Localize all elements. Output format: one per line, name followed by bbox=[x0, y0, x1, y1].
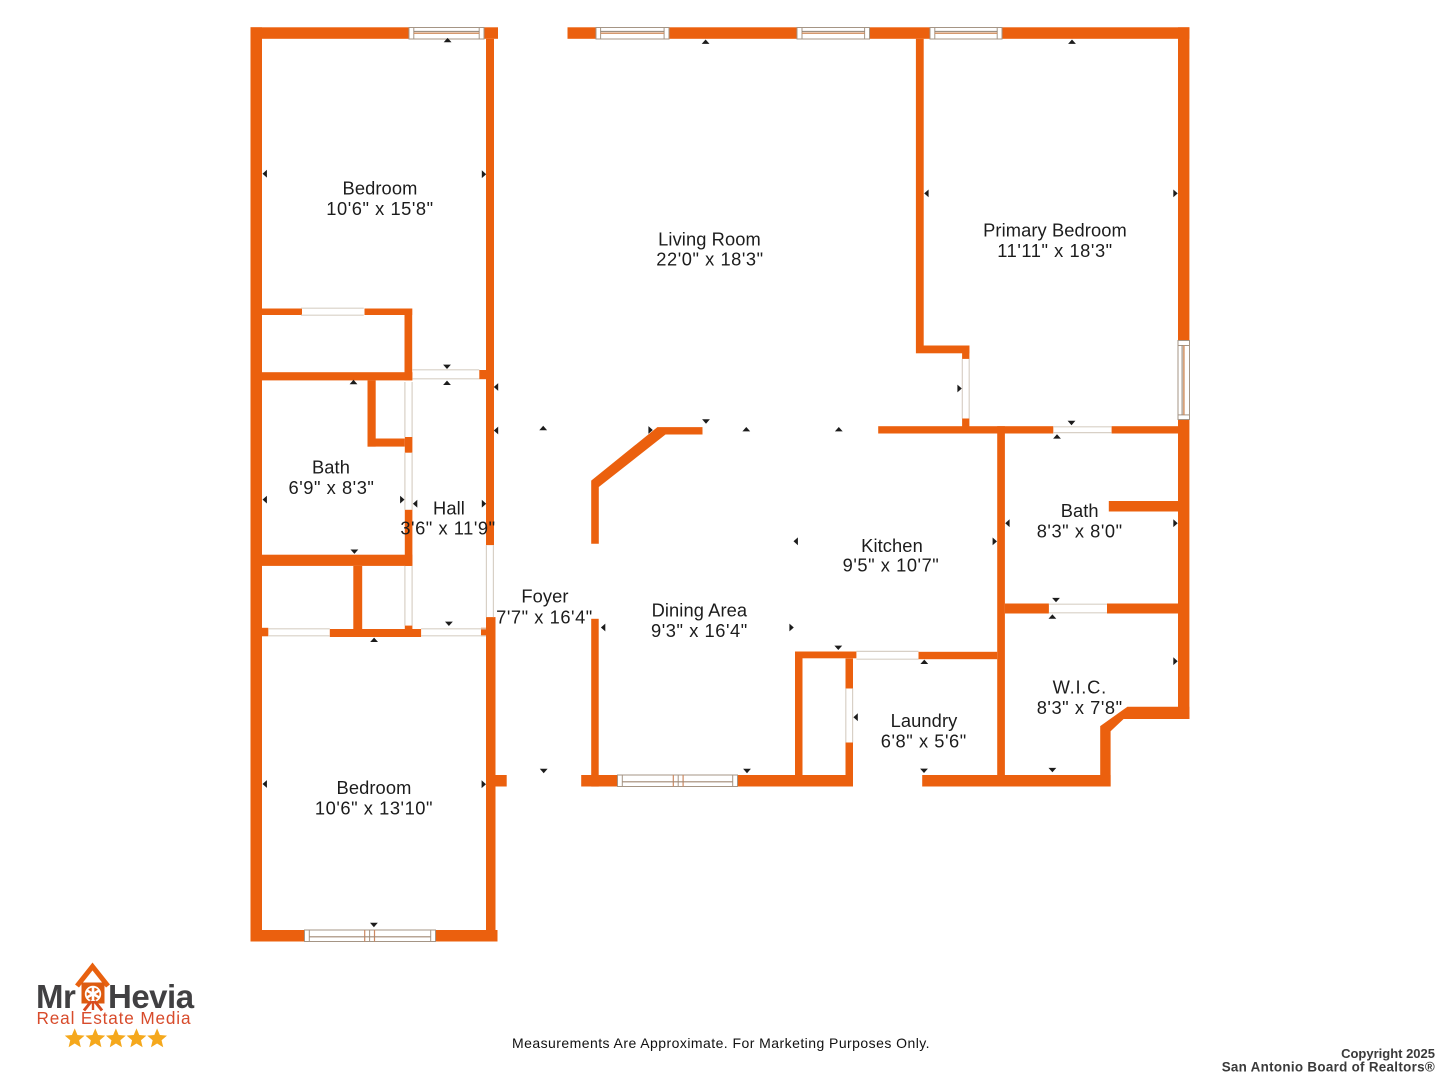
svg-text:11'11" x 18'3": 11'11" x 18'3" bbox=[997, 240, 1112, 261]
svg-text:W.I.C.: W.I.C. bbox=[1053, 676, 1107, 697]
svg-text:Primary Bedroom: Primary Bedroom bbox=[983, 219, 1127, 240]
svg-text:Foyer: Foyer bbox=[521, 586, 568, 607]
svg-text:Laundry: Laundry bbox=[891, 710, 959, 731]
svg-text:10'6" x 13'10": 10'6" x 13'10" bbox=[315, 798, 433, 819]
svg-text:10'6" x 15'8": 10'6" x 15'8" bbox=[326, 198, 433, 219]
svg-text:7'7" x 16'4": 7'7" x 16'4" bbox=[496, 606, 593, 627]
svg-text:Bedroom: Bedroom bbox=[337, 777, 412, 798]
svg-text:Bath: Bath bbox=[1061, 500, 1099, 521]
svg-text:Measurements Are Approximate.: Measurements Are Approximate. For Market… bbox=[512, 1035, 930, 1051]
svg-text:6'8" x 5'6": 6'8" x 5'6" bbox=[881, 730, 967, 751]
svg-text:Dining Area: Dining Area bbox=[652, 599, 748, 620]
svg-text:Kitchen: Kitchen bbox=[861, 535, 923, 556]
svg-text:Bath: Bath bbox=[312, 457, 350, 478]
svg-text:22'0" x 18'3": 22'0" x 18'3" bbox=[656, 249, 763, 270]
svg-text:Real Estate Media: Real Estate Media bbox=[37, 1008, 192, 1028]
svg-text:San Antonio Board of Realtors®: San Antonio Board of Realtors® bbox=[1222, 1060, 1435, 1075]
svg-text:Living Room: Living Room bbox=[658, 228, 761, 249]
svg-text:3'6" x 11'9": 3'6" x 11'9" bbox=[400, 518, 495, 539]
svg-text:9'3" x 16'4": 9'3" x 16'4" bbox=[651, 620, 748, 641]
svg-text:8'3" x 8'0": 8'3" x 8'0" bbox=[1037, 521, 1123, 542]
svg-text:6'9" x 8'3": 6'9" x 8'3" bbox=[289, 477, 375, 498]
svg-text:9'5" x 10'7": 9'5" x 10'7" bbox=[843, 555, 940, 576]
svg-text:Hall: Hall bbox=[433, 497, 465, 518]
svg-text:Bedroom: Bedroom bbox=[343, 177, 418, 198]
svg-text:8'3" x 7'8": 8'3" x 7'8" bbox=[1037, 697, 1123, 718]
